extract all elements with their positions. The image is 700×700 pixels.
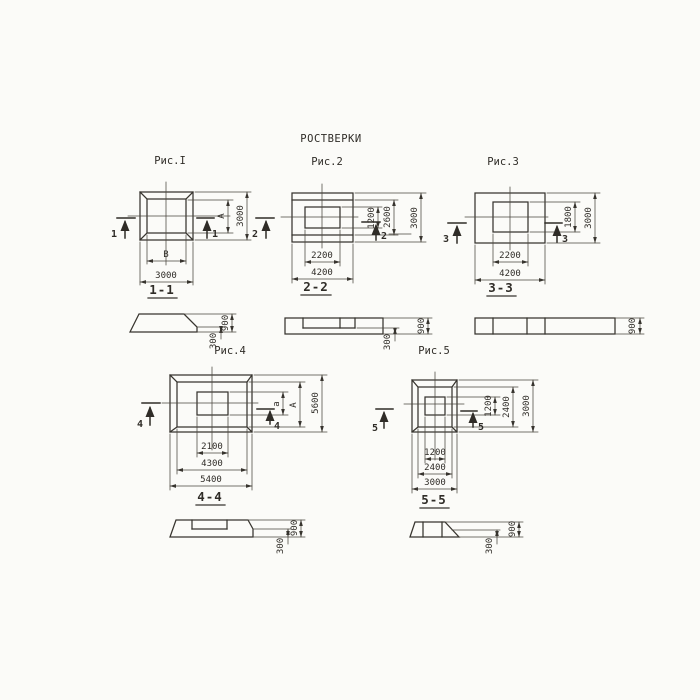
dim-right-1: 1200 [484,395,494,417]
cut-label-left: 2 [252,229,258,240]
dim-total-height: 900 [221,315,231,331]
profile-outline [410,522,459,537]
dim-step-height: 300 [276,538,286,554]
cut-label-right: 5 [478,422,484,433]
dim-bottom-3: 5400 [200,475,222,485]
cut-label-left: 1 [111,229,117,240]
inner-contour [305,207,340,228]
cut-label-left: 5 [372,423,378,434]
figure-1-section-title: 1-1 [148,282,177,298]
figure-1-cut-marks: 1 1 [111,218,218,240]
drawing-title: РОСТВЕРКИ [300,133,361,145]
corner-bevels [170,375,252,432]
figure-3-cut-marks: 3 3 [443,223,568,245]
dim-right-2: 2400 [502,396,512,418]
figure-4-plan [162,367,258,450]
outer-contour [170,375,252,432]
dim-right-1: 1800 [564,206,574,228]
dim-bottom-1: 2200 [311,251,333,261]
dim-bottom-2: 2400 [424,463,446,473]
dim-right-3: 3000 [522,395,532,417]
figure-5-plan [404,372,464,460]
dim-right-3: 3000 [410,207,420,229]
dim-outer-width: 3000 [155,271,177,281]
figure-3-section-title: 3-3 [487,280,516,296]
dim-bottom-1: 1200 [424,448,446,458]
dim-right-2: 3000 [584,207,594,229]
cut-label-right: 3 [562,234,568,245]
profile-outline [285,318,383,334]
dim-step-height: 300 [383,334,393,350]
figure-3-caption: Рис.3 [487,156,519,168]
section-4-4-profile: 300 900 [170,520,305,554]
dim-bottom-1: 2200 [499,251,521,261]
section-title: 3-3 [488,280,514,295]
figure-1-dimensions: А 3000 В 3000 [140,192,251,285]
cut-label-right: 4 [274,421,280,432]
dim-total-height: 900 [417,318,427,334]
figure-1-caption: Рис.I [154,155,186,167]
figure-3-plan [465,187,548,250]
dim-right-2: 2600 [383,206,393,228]
figure-4: Рис.4 а А [137,345,327,505]
figure-5: Рис.5 1200 2400 [372,345,538,508]
figure-4-section-title: 4-4 [196,489,225,505]
corner-bevels [412,380,457,432]
figure-3: Рис.3 1800 3000 2200 4200 [443,156,600,296]
centerlines [404,372,464,460]
profile-outline [130,314,197,332]
cut-label-right: 2 [381,231,387,242]
dim-inner-width: В [163,250,168,260]
dim-total-height: 900 [628,318,638,334]
dim-inner-height: А [217,213,227,219]
figure-2: Рис.2 1200 2600 3000 [252,156,426,295]
dim-total-height: 900 [290,520,300,536]
profile-joints [423,522,442,537]
section-3-3-profile: 900 [475,318,644,334]
section-title: 2-2 [303,279,329,294]
inner-contour [197,392,228,415]
section-title: 4-4 [197,489,223,504]
dim-bottom-3: 3000 [424,478,446,488]
cut-label-left: 3 [443,234,449,245]
figure-5-caption: Рис.5 [418,345,450,357]
figure-2-section-title: 2-2 [301,279,331,295]
figure-1: Рис.I А 3000 [111,155,251,298]
figure-2-caption: Рис.2 [311,156,343,168]
profile-recess [192,520,227,529]
dim-total-height: 900 [508,521,518,537]
figure-5-section-title: 5-5 [420,492,449,508]
figure-3-dimensions: 1800 3000 2200 4200 [475,193,600,284]
section-title: 5-5 [421,492,447,507]
figure-4-caption: Рис.4 [214,345,246,357]
figure-5-cut-marks: 5 5 [372,409,484,434]
section-2-2-profile: 300 900 [285,318,432,350]
figure-1-plan [128,182,230,265]
section-1-1-profile: 300 900 [130,314,236,349]
outer-contour [412,380,457,432]
cut-label-left: 4 [137,419,143,430]
dim-bottom-2: 4200 [499,269,521,279]
dim-bottom-1: 2100 [201,442,223,452]
dim-step-height: 300 [485,538,495,554]
dim-right-2: А [289,402,299,408]
dim-right-3: 5600 [311,392,321,414]
cut-label-right: 1 [212,229,218,240]
dim-right-1: а [272,401,282,406]
dim-bottom-2: 4300 [201,459,223,469]
centerlines [465,187,548,250]
profile-joints [493,318,545,334]
figure-4-cut-marks: 4 4 [137,403,280,432]
dim-bottom-2: 4200 [311,268,333,278]
profile-recess [303,318,355,328]
figure-2-plan [281,184,358,248]
dim-outer-height: 3000 [236,205,246,227]
engineering-drawing: РОСТВЕРКИ Рис.I А 3000 [0,0,700,700]
section-title: 1-1 [149,282,175,297]
section-5-5-profile: 300 900 [410,521,523,554]
